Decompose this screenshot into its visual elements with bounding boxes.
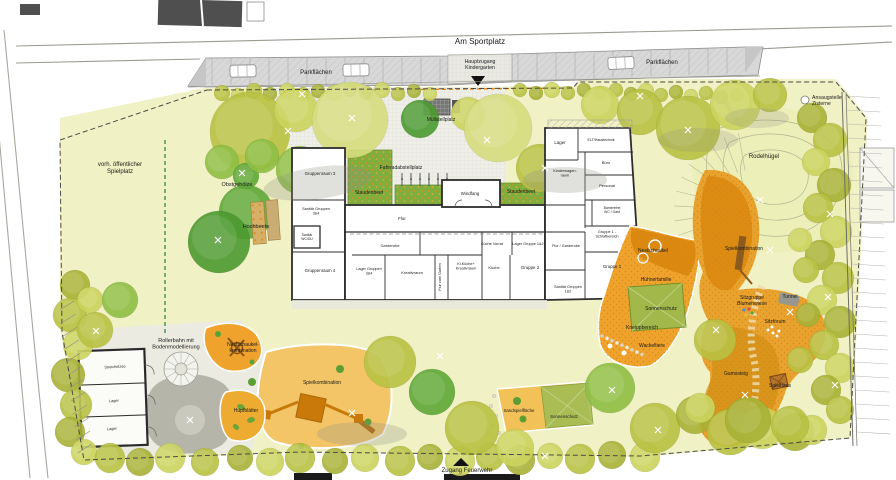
tree-icon bbox=[685, 393, 715, 423]
south-structure-1 bbox=[294, 473, 332, 480]
label-storage-right: Lager bbox=[554, 140, 566, 145]
tree-icon bbox=[771, 406, 809, 444]
label-parking-right: Parkflächen bbox=[646, 60, 678, 66]
tree-icon bbox=[793, 257, 819, 283]
tree-icon bbox=[245, 139, 279, 173]
label-waste-area: Müllstellplatz bbox=[427, 117, 456, 123]
street-edge-south-left bbox=[16, 59, 200, 63]
tree-icon bbox=[598, 441, 626, 469]
label-kitchen-pantry: Küche Vorrat bbox=[481, 242, 504, 246]
tree-icon bbox=[725, 397, 771, 443]
tree-icon bbox=[77, 287, 103, 313]
label-group-room-3: Gruppenraum 3 bbox=[305, 171, 336, 176]
label-orchard: Obstgehölze bbox=[222, 182, 253, 188]
tree-icon bbox=[417, 444, 443, 470]
label-corridor-cloakroom: Flur / Garderobe bbox=[552, 244, 580, 248]
label-sun-shade-bottom: Sonnenschutz bbox=[550, 414, 578, 419]
neighbour-building-small bbox=[20, 4, 40, 15]
label-parking-left: Parkflächen bbox=[300, 70, 332, 76]
label-sun-shade-right: Sonnenschutz bbox=[645, 306, 677, 312]
label-sand-play-area: Sandspielfläche bbox=[503, 408, 535, 413]
tree-icon bbox=[826, 396, 854, 424]
tree-icon bbox=[407, 84, 421, 98]
site-plan-page: Am SportplatzParkflächenParkflächenHaupt… bbox=[0, 0, 896, 480]
label-office: Büro bbox=[602, 160, 611, 165]
tree-icon bbox=[285, 443, 315, 473]
neighbour-outline bbox=[247, 2, 264, 21]
tree-icon bbox=[581, 86, 619, 124]
tree-icon bbox=[464, 94, 532, 162]
label-group-1: Gruppe 1 bbox=[603, 264, 622, 269]
tree-icon bbox=[102, 282, 138, 318]
label-shed-storage-2: Lager bbox=[107, 427, 118, 432]
hop-leaves-area bbox=[220, 390, 265, 441]
label-storage-12: Lager Gruppe 1&2 bbox=[512, 242, 543, 246]
label-play-combo-bottom: Spielkombination bbox=[303, 380, 341, 386]
label-seating-meadow: SitzgruppeBlumenwiese bbox=[737, 295, 767, 307]
sand-bush-2 bbox=[520, 416, 527, 423]
label-sledding-hill: Rodelhügel bbox=[749, 154, 779, 160]
label-corridor-garden: Flur zum Garten bbox=[438, 263, 442, 290]
label-seating-forum: Sitzforum bbox=[764, 319, 785, 325]
car-icon bbox=[343, 64, 369, 76]
tree-icon bbox=[787, 347, 813, 373]
bush-1 bbox=[215, 331, 221, 337]
label-corridor: Flur bbox=[398, 216, 406, 221]
site-plan-drawing: Am SportplatzParkflächenParkflächenHaupt… bbox=[0, 0, 896, 480]
tree-icon bbox=[274, 88, 318, 132]
bed-mid-flowers bbox=[395, 185, 442, 205]
tree-icon bbox=[351, 444, 379, 472]
tree-icon bbox=[537, 443, 563, 469]
spiral-ramp bbox=[164, 352, 198, 386]
tree-icon bbox=[496, 429, 534, 467]
label-staff-room: Personal bbox=[599, 183, 615, 188]
tree-icon bbox=[191, 448, 219, 476]
tree-icon bbox=[753, 78, 787, 112]
wobble-animal-1 bbox=[608, 344, 613, 349]
label-play-combo-right: Spielkombination bbox=[725, 246, 763, 252]
label-nest-swing: Nestschaukel bbox=[638, 248, 668, 254]
cistern-icon bbox=[801, 96, 809, 104]
tree-icon bbox=[71, 439, 97, 465]
side-road-outer bbox=[4, 30, 48, 478]
label-bike-parking: Fahrradabstellplatz bbox=[380, 165, 423, 171]
label-fire-access: Zugang Feuerwehr bbox=[442, 468, 493, 474]
tree-icon bbox=[513, 83, 527, 97]
label-wobble-animals: Wackeltiere bbox=[639, 343, 665, 349]
tree-icon bbox=[544, 82, 560, 98]
tree-icon bbox=[565, 444, 595, 474]
side-road-inner bbox=[0, 58, 30, 478]
wobble-animal-2 bbox=[622, 351, 627, 356]
label-creative-room: Kreativraum bbox=[401, 270, 423, 275]
label-accessible-wc: BarrierefreiWC / Gast bbox=[604, 206, 621, 214]
label-main-entrance: HauptzugangKindergarten bbox=[465, 59, 496, 71]
tree-icon bbox=[385, 446, 415, 476]
label-street-name: Am Sportplatz bbox=[455, 37, 505, 46]
label-building-services: ELT/Haustechnik bbox=[587, 138, 614, 142]
bush-2 bbox=[250, 360, 255, 365]
north-deck bbox=[548, 120, 632, 128]
label-small-kitchen: Kl.Küche+Kreativraum bbox=[456, 262, 476, 270]
tree-icon bbox=[409, 369, 455, 415]
tree-icon bbox=[364, 336, 416, 388]
car-icon bbox=[230, 65, 256, 77]
label-nest-swing-combo: Nestschaukel-kombination bbox=[227, 342, 259, 354]
tree-icon bbox=[630, 403, 680, 453]
tree-icon bbox=[788, 228, 812, 252]
label-hop-leaves: Hüpfblätter bbox=[234, 408, 259, 414]
sand-bush-1 bbox=[513, 397, 521, 405]
label-group-2: Gruppe 2 bbox=[521, 265, 540, 270]
label-perennial-bed-left: Staudenbeet bbox=[355, 190, 384, 196]
tree-icon bbox=[155, 443, 185, 473]
tree-icon bbox=[256, 448, 284, 476]
label-shed-storage-1: Lager bbox=[109, 399, 120, 404]
tree-icon bbox=[694, 319, 736, 361]
label-roller-track: Rollerbahn mitBodenmodellierung bbox=[152, 338, 199, 350]
tree-icon bbox=[126, 448, 154, 476]
south-walk bbox=[292, 300, 547, 309]
label-group1-sleep: Gruppe 1 -Schlafbereich bbox=[595, 230, 618, 238]
label-play-house: Spielhaus bbox=[769, 383, 791, 389]
label-raised-beds: Hochbeete bbox=[243, 224, 270, 230]
neighbour-building-large bbox=[158, 0, 243, 27]
label-kitchen: Küche bbox=[488, 265, 500, 270]
car-icon bbox=[608, 56, 634, 69]
label-group-room-4: Gruppenraum 4 bbox=[305, 268, 336, 273]
raised-bed-box-2 bbox=[266, 200, 281, 241]
label-cloakroom: Garderobe bbox=[380, 243, 400, 248]
label-chicken-family: Hühnerfamilie bbox=[641, 277, 672, 283]
tree-icon bbox=[95, 443, 125, 473]
tree-icon bbox=[227, 445, 253, 471]
label-mountain-trail: Gamssteig bbox=[724, 371, 748, 377]
label-tunnel: Tunnel bbox=[782, 294, 797, 300]
label-sanitary-wc: SanitärWC/DU bbox=[301, 233, 313, 241]
street-edge-south-right bbox=[758, 42, 892, 49]
building-middle-block bbox=[345, 205, 545, 300]
label-perennial-bed-right: Staudenbeet bbox=[507, 189, 536, 195]
tree-icon bbox=[445, 401, 499, 455]
label-windbreak: Windfang bbox=[461, 191, 480, 196]
tree-icon bbox=[796, 303, 820, 327]
tree-icon bbox=[188, 211, 250, 273]
label-kneipp-area: Kneippbereich bbox=[626, 325, 658, 331]
